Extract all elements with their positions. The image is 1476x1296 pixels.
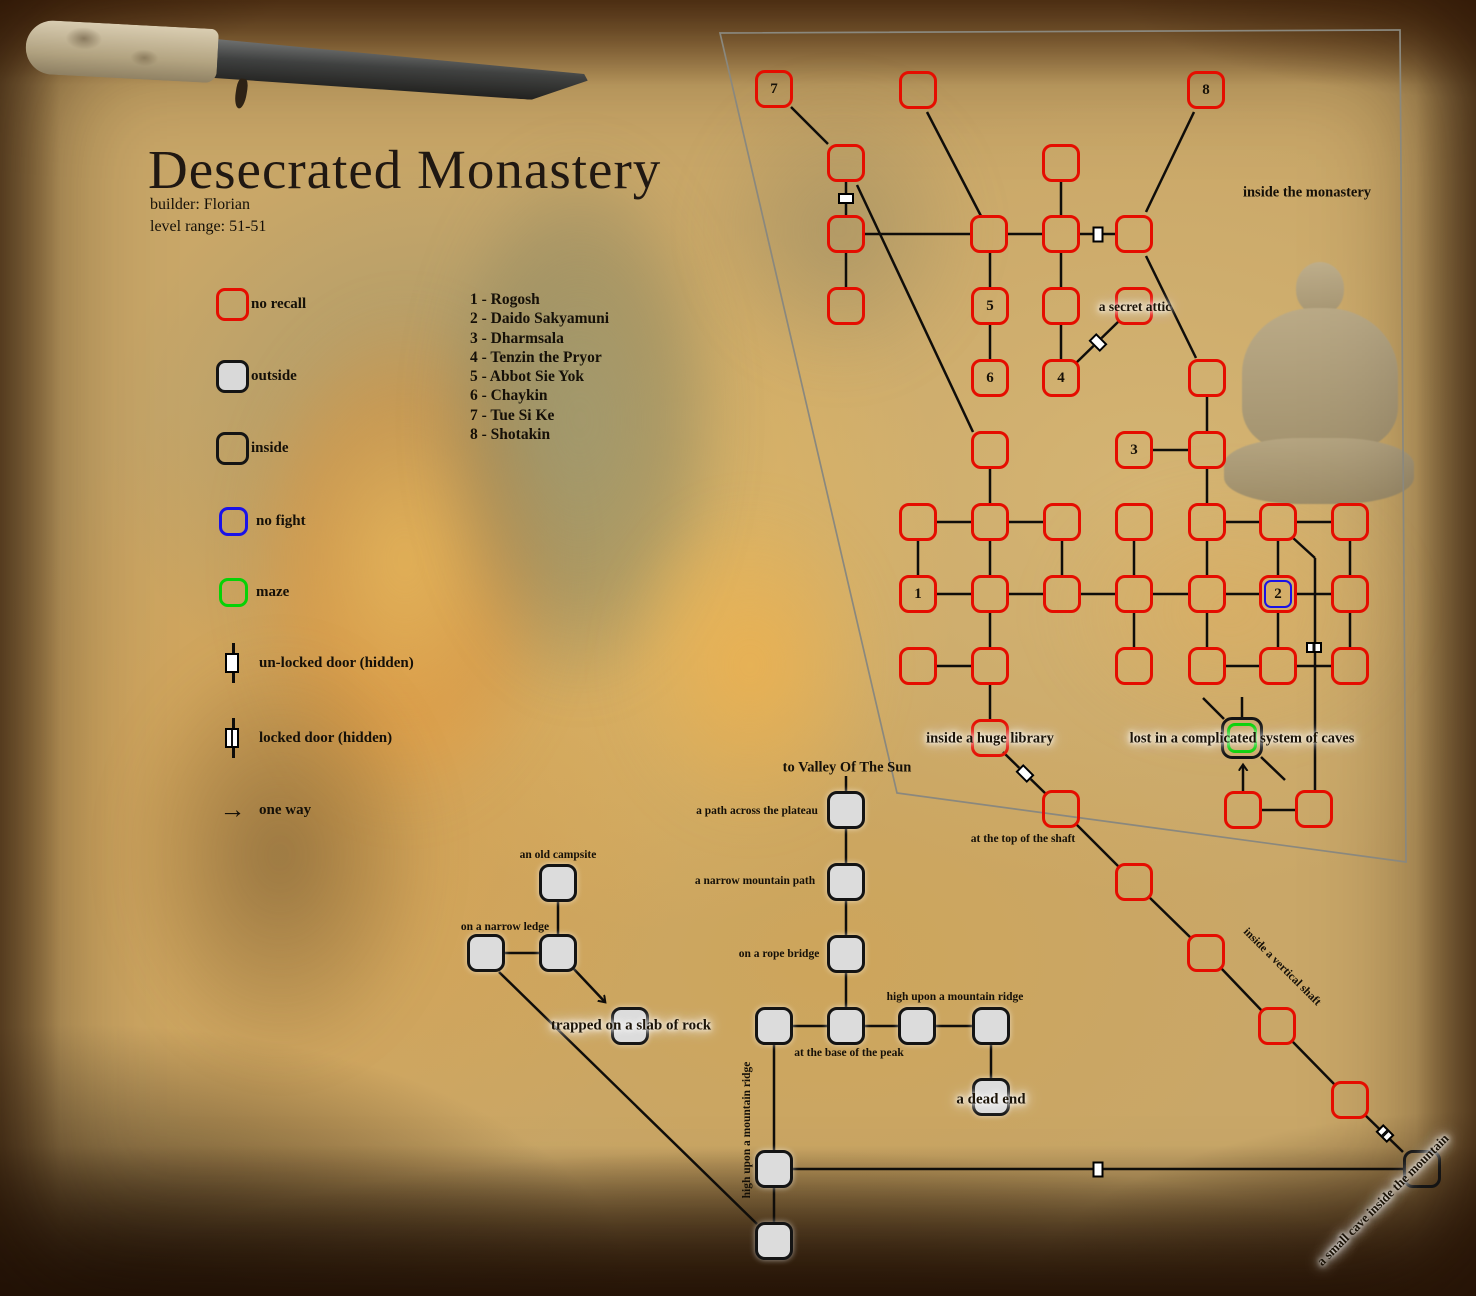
room-h4: [1115, 575, 1153, 613]
room-i4: [1188, 647, 1226, 685]
room-2: 2: [1259, 575, 1297, 613]
room-number-label: 8: [1202, 82, 1210, 99]
room-k3: [1187, 934, 1225, 972]
room-b1: [1042, 144, 1080, 182]
room-top-mid: [899, 71, 937, 109]
room-narrow-path: [827, 863, 865, 901]
map-connection: [927, 112, 981, 216]
map-area-label: inside the monastery: [1243, 185, 1371, 202]
room-i1: [899, 647, 937, 685]
room-number-label: 1: [914, 586, 922, 603]
room-g6: [1259, 503, 1297, 541]
room-i6: [1331, 647, 1369, 685]
room-3: 3: [1115, 431, 1153, 469]
room-d1: [827, 287, 865, 325]
unlocked-door-icon: [1093, 1161, 1104, 1177]
room-base3: [898, 1007, 936, 1045]
room-j2: [1295, 790, 1333, 828]
room-h3: [1043, 575, 1081, 613]
room-campsite: [539, 864, 577, 902]
room-8: 8: [1187, 71, 1225, 109]
room-k5: [1331, 1081, 1369, 1119]
map-area-label: lost in a complicated system of caves: [1130, 731, 1355, 748]
room-k4: [1258, 1007, 1296, 1045]
map-connection: [1148, 896, 1192, 939]
room-d3: [1042, 287, 1080, 325]
room-f3: [1188, 431, 1226, 469]
map-area-label: a dead end: [956, 1092, 1025, 1109]
room-6: 6: [971, 359, 1009, 397]
room-rope-bridge: [827, 935, 865, 973]
unlocked-door-icon: [1093, 226, 1104, 242]
room-ridge1: [755, 1150, 793, 1188]
room-c4: [1115, 215, 1153, 253]
map-area-label: at the top of the shaft: [971, 833, 1075, 845]
map-area-label: high upon a mountain ridge: [741, 1062, 753, 1199]
room-ridge2: [755, 1222, 793, 1260]
room-g3: [1043, 503, 1081, 541]
room-i5: [1259, 647, 1297, 685]
room-c1: [827, 215, 865, 253]
room-h5: [1188, 575, 1226, 613]
map-connection: [1291, 1040, 1336, 1086]
map-area-label: a path across the plateau: [696, 805, 818, 817]
room-k2: [1115, 863, 1153, 901]
map-connection: [1146, 112, 1194, 212]
room-c2: [970, 215, 1008, 253]
unlocked-door-icon: [838, 193, 854, 204]
map-connection: [1203, 698, 1224, 719]
room-number-label: 2: [1274, 586, 1282, 603]
room-j1: [1224, 791, 1262, 829]
room-h2: [971, 575, 1009, 613]
room-number-label: 4: [1057, 370, 1065, 387]
map-connection: [1220, 967, 1263, 1012]
room-i2: [971, 647, 1009, 685]
room-plateau: [827, 791, 865, 829]
map-connection: [857, 185, 973, 432]
room-g2: [971, 503, 1009, 541]
map-area-label: to Valley Of The Sun: [783, 760, 912, 777]
room-g4: [1115, 503, 1153, 541]
room-number-label: 7: [770, 81, 778, 98]
room-i3: [1115, 647, 1153, 685]
room-base2: [827, 1007, 865, 1045]
map-area-label: inside a huge library: [926, 731, 1054, 748]
room-g5: [1188, 503, 1226, 541]
map-area-label: an old campsite: [520, 849, 597, 861]
map-area-label: trapped on a slab of rock: [551, 1018, 711, 1035]
room-a1: [827, 144, 865, 182]
room-ledge-left: [467, 934, 505, 972]
map-area-label: a narrow mountain path: [695, 875, 815, 887]
room-ledge-right: [539, 934, 577, 972]
room-c3: [1042, 215, 1080, 253]
map-connection: [791, 107, 828, 144]
room-h7: [1331, 575, 1369, 613]
map-connection: [1075, 823, 1120, 868]
room-shaft-top: [1042, 790, 1080, 828]
room-5: 5: [971, 287, 1009, 325]
map-page: Desecrated Monastery builder: Florian le…: [0, 0, 1476, 1296]
room-base1: [755, 1007, 793, 1045]
room-g7: [1331, 503, 1369, 541]
locked-door-icon: [1306, 642, 1322, 653]
room-number-label: 5: [986, 298, 994, 315]
map-area-label: on a rope bridge: [739, 948, 820, 960]
room-1: 1: [899, 575, 937, 613]
room-4: 4: [1042, 359, 1080, 397]
room-base4: [972, 1007, 1010, 1045]
map-area-label: at the base of the peak: [794, 1047, 904, 1059]
map-area-label: a secret attic: [1099, 299, 1171, 315]
room-number-label: 6: [986, 370, 994, 387]
map-area-label: on a narrow ledge: [461, 921, 549, 933]
room-g1: [899, 503, 937, 541]
one-way-connection: [572, 967, 605, 1002]
map-area-label: high upon a mountain ridge: [887, 991, 1024, 1003]
room-7: 7: [755, 70, 793, 108]
room-f1: [971, 431, 1009, 469]
room-number-label: 3: [1130, 442, 1138, 459]
map-connection: [1261, 757, 1285, 780]
map-connection: [1292, 537, 1315, 558]
room-e3: [1188, 359, 1226, 397]
